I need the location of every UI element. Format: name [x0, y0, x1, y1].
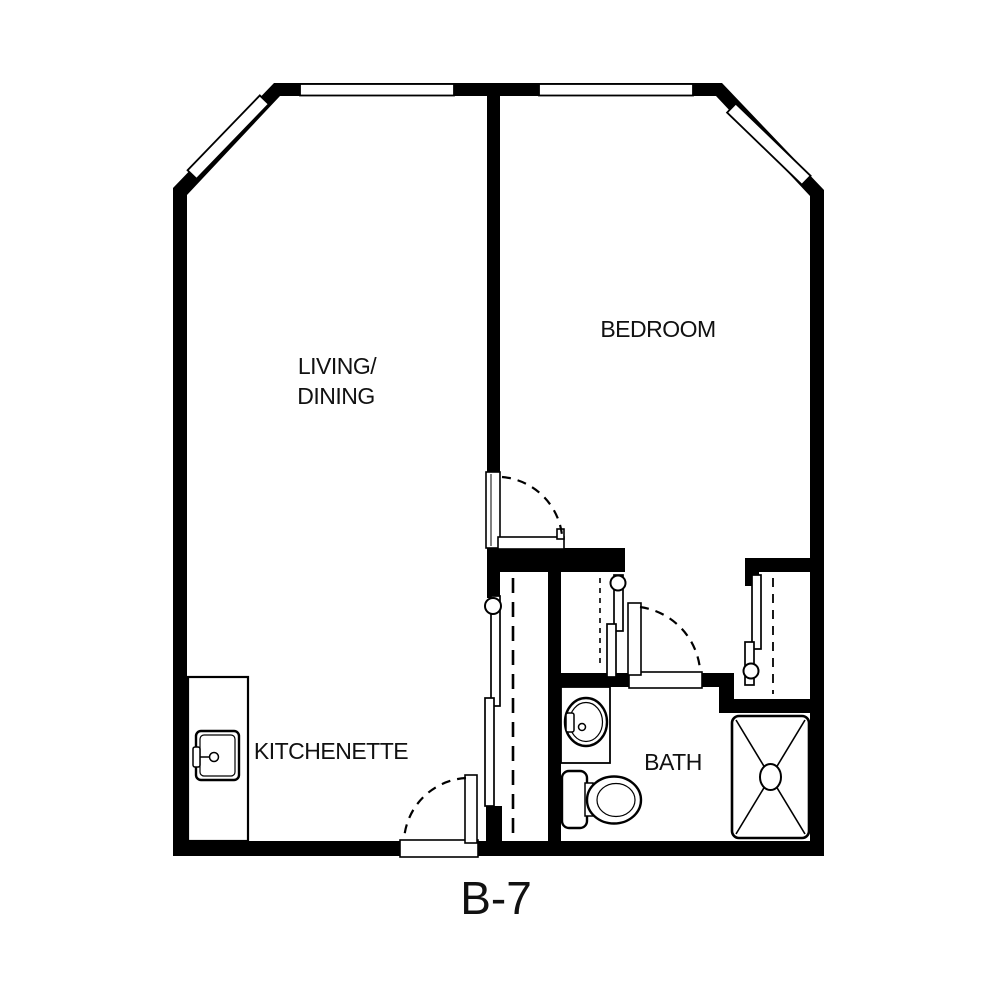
kitchenette-label: KITCHENETTE: [254, 738, 408, 764]
entry-door-swing-arc: [404, 778, 466, 840]
wall-bedroom-south-right: [745, 558, 824, 572]
entry-door: [400, 775, 478, 857]
bath-door-swing-arc: [640, 607, 700, 669]
bedroom-closet-door-panel-1: [752, 575, 761, 649]
bath-door-leaf: [628, 603, 641, 675]
bath-label: BATH: [644, 749, 702, 775]
living-dining-label-line2: DINING: [297, 383, 375, 409]
bedroom-door-leaf: [498, 537, 564, 549]
wall-living-closet-post-top: [487, 572, 500, 598]
hall-closet-door-panel-2: [607, 624, 616, 677]
window-top-right: [539, 84, 693, 96]
window-chamfer-left: [188, 95, 269, 178]
toilet-tank: [562, 771, 587, 828]
wall-living-closet-post-bottom: [486, 806, 502, 842]
living-dining-label-line1: LIVING/: [298, 353, 377, 379]
shower: [732, 716, 809, 838]
bedroom-door-swing-arc: [502, 477, 562, 535]
wall-bath-north-left: [548, 673, 630, 687]
living-closet-door-pull: [485, 598, 501, 614]
entry-door-leaf: [465, 775, 477, 843]
hall-closet: [600, 575, 626, 677]
floor-plan-drawing: LIVING/ DINING BEDROOM KITCHENETTE BATH …: [0, 0, 1000, 1000]
plan-id-label: B-7: [460, 872, 532, 924]
toilet: [562, 771, 641, 828]
wall-closet-bath: [548, 548, 561, 856]
bedroom-closet: [744, 575, 774, 694]
bath-door: [628, 603, 702, 688]
window-top-left: [300, 84, 454, 96]
living-closet-door-panel-2: [485, 698, 494, 806]
window-chamfer-right: [727, 104, 810, 185]
bedroom-door: [486, 472, 564, 549]
wall-shower-north: [719, 699, 824, 713]
shower-drain: [760, 764, 781, 790]
bedroom-closet-door-pull: [744, 664, 759, 679]
living-closet: [485, 578, 513, 838]
hall-closet-door-pull: [611, 576, 626, 591]
wall-living-bedroom-divider: [487, 96, 500, 472]
floor-plan-page: LIVING/ DINING BEDROOM KITCHENETTE BATH …: [0, 0, 1000, 1000]
kitchenette-fixtures: [188, 677, 248, 841]
bedroom-label: BEDROOM: [600, 316, 715, 342]
